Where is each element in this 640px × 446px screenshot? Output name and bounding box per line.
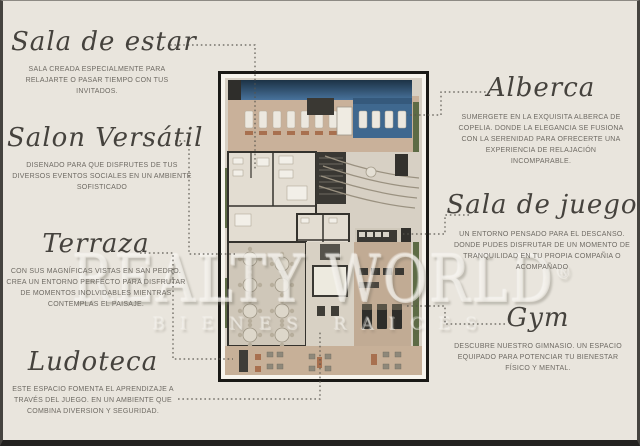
label-desc-sala-de-estar: SALA CREADA ESPECIALMENTE PARA RELAJARTE… (21, 65, 173, 98)
floor-plan (218, 71, 429, 382)
terrace (225, 346, 422, 375)
label-sala-de-juego: Sala de juego UN ENTORNO PENSADO PARA EL… (446, 190, 638, 274)
pergola (307, 98, 334, 115)
label-desc-gym: DESCUBRE NUESTRO GIMNASIO. UN ESPACIO EQ… (452, 342, 624, 375)
label-desc-terraza: CON SUS MAGNÍFICAS VISTAS EN SAN PEDRO. … (5, 267, 187, 310)
brochure-page: REALTY WORLD® BIENES RAICES Sala de esta… (0, 0, 640, 446)
label-title-alberca: Alberca (453, 73, 629, 104)
label-desc-alberca: SUMERGETE EN LA EXQUISITA ALBERCA DE COP… (455, 113, 627, 167)
elevator-core (316, 152, 346, 204)
label-ludoteca: Ludoteca ESTE ESPACIO FOMENTA EL APRENDI… (3, 347, 183, 418)
dining-tables (228, 242, 306, 347)
floor-plan-image (225, 78, 422, 375)
gym-equipment (354, 242, 411, 346)
label-salon-versatil: Salon Versátil DISENADO PARA QUE DISFRUT… (7, 123, 197, 194)
label-terraza: Terraza CON SUS MAGNÍFICAS VISTAS EN SAN… (3, 229, 189, 311)
pool-house (337, 107, 352, 135)
label-alberca: Alberca SUMERGETE EN LA EXQUISITA ALBERC… (453, 73, 629, 167)
label-title-sala-de-estar: Sala de estar (11, 27, 183, 58)
splash-pad (306, 242, 354, 346)
label-title-salon-versatil: Salon Versátil (7, 123, 197, 154)
label-title-ludoteca: Ludoteca (3, 347, 183, 378)
label-desc-sala-de-juego: UN ENTORNO PENSADO PARA EL DESCANSO. DON… (449, 230, 635, 273)
service-block (228, 80, 241, 100)
label-title-sala-de-juego: Sala de juego (446, 190, 638, 221)
label-gym: Gym DESCUBRE NUESTRO GIMNASIO. UN ESPACI… (448, 303, 628, 375)
side-table (366, 167, 376, 177)
media-cabinet (395, 154, 408, 176)
label-desc-salon-versatil: DISENADO PARA QUE DISFRUTES DE TUS DIVER… (11, 161, 193, 194)
label-sala-de-estar: Sala de estar SALA CREADA ESPECIALMENTE … (11, 27, 183, 98)
label-desc-ludoteca: ESTE ESPACIO FOMENTA EL APRENDIZAJE A TR… (8, 385, 178, 418)
label-title-gym: Gym (448, 303, 628, 334)
label-title-terraza: Terraza (3, 229, 189, 260)
